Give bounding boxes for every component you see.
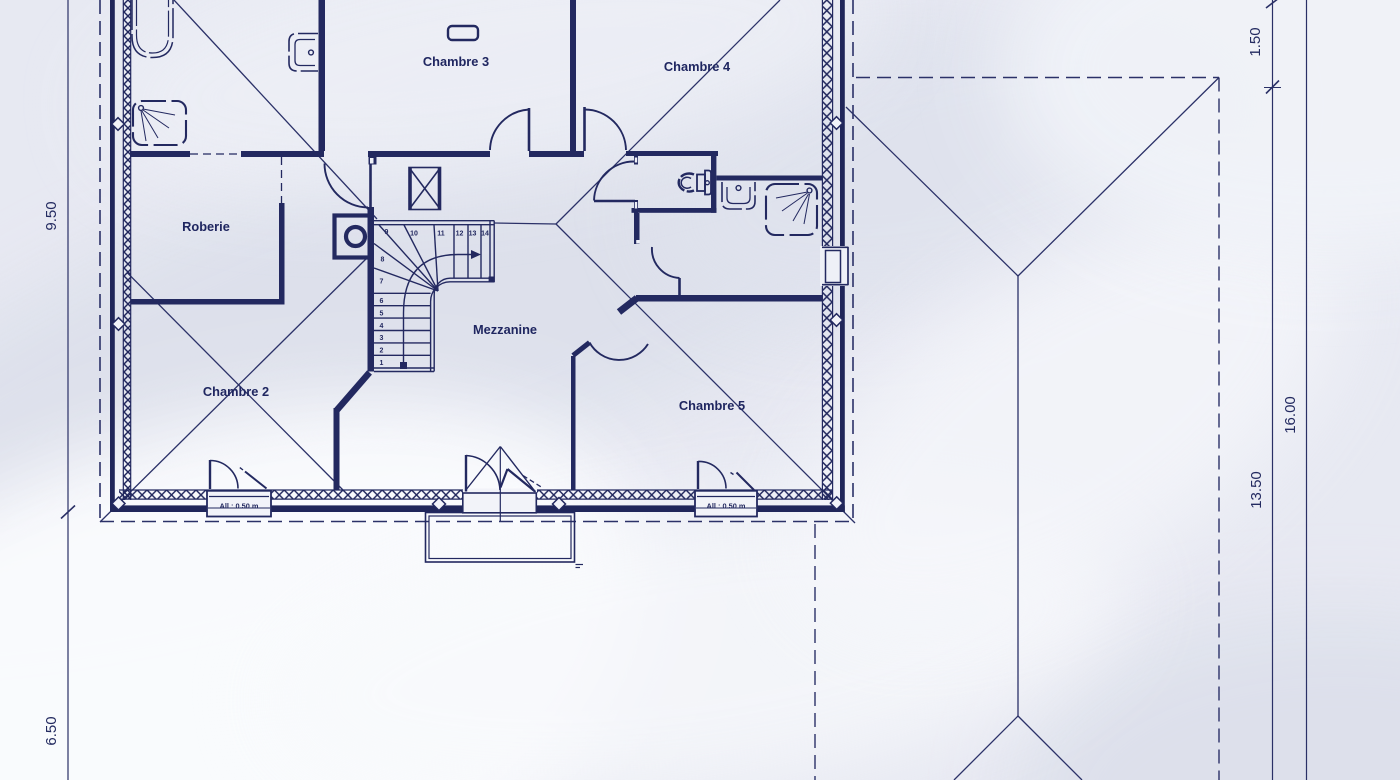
svg-text:9.50: 9.50	[43, 201, 60, 230]
svg-text:16.00: 16.00	[1282, 396, 1299, 434]
svg-text:Chambre 3: Chambre 3	[423, 54, 489, 69]
svg-text:Chambre 4: Chambre 4	[664, 59, 731, 74]
svg-text:2: 2	[380, 348, 384, 355]
svg-text:12: 12	[456, 231, 464, 238]
svg-text:Roberie: Roberie	[182, 219, 230, 234]
svg-text:9: 9	[385, 229, 389, 236]
svg-text:13: 13	[469, 231, 477, 238]
svg-text:All : 0.50 m: All : 0.50 m	[706, 502, 745, 511]
svg-text:1.50: 1.50	[1247, 27, 1264, 56]
svg-text:6.50: 6.50	[43, 716, 60, 745]
svg-text:7: 7	[380, 279, 384, 286]
svg-text:14: 14	[481, 231, 489, 238]
svg-text:4: 4	[380, 323, 384, 330]
svg-text:11: 11	[437, 231, 445, 238]
svg-text:1: 1	[380, 360, 384, 367]
svg-text:3: 3	[380, 335, 384, 342]
svg-text:Chambre 2: Chambre 2	[203, 384, 269, 399]
svg-text:Chambre 5: Chambre 5	[679, 398, 745, 413]
svg-text:All : 0.50 m: All : 0.50 m	[219, 502, 258, 511]
svg-text:10: 10	[410, 231, 418, 238]
svg-text:Mezzanine: Mezzanine	[473, 322, 537, 337]
svg-text:13.50: 13.50	[1248, 471, 1265, 509]
svg-text:8: 8	[381, 257, 385, 264]
svg-text:5: 5	[380, 310, 384, 317]
svg-text:6: 6	[380, 298, 384, 305]
